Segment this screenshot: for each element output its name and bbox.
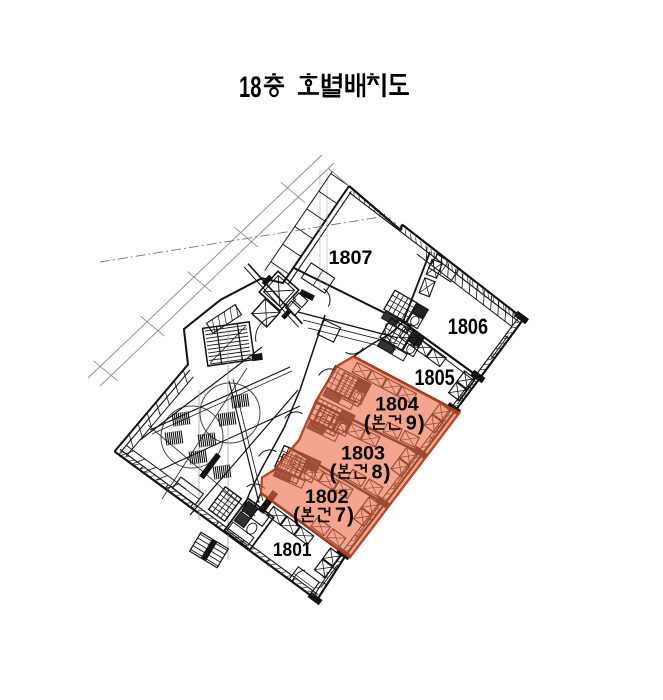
svg-text:): ) bbox=[384, 461, 391, 484]
svg-text:1801: 1801 bbox=[273, 540, 312, 561]
svg-text:(: ( bbox=[364, 412, 371, 435]
svg-text:): ) bbox=[347, 504, 354, 527]
svg-text:1807: 1807 bbox=[329, 247, 373, 269]
svg-text:(: ( bbox=[330, 461, 337, 484]
svg-text:(: ( bbox=[293, 504, 300, 527]
svg-text:8: 8 bbox=[372, 461, 383, 483]
svg-text:1805: 1805 bbox=[415, 365, 455, 390]
svg-text:18: 18 bbox=[239, 71, 261, 104]
svg-text:9: 9 bbox=[406, 412, 417, 434]
svg-text:1806: 1806 bbox=[448, 314, 488, 339]
svg-text:7: 7 bbox=[335, 505, 346, 527]
svg-text:): ) bbox=[418, 412, 425, 435]
